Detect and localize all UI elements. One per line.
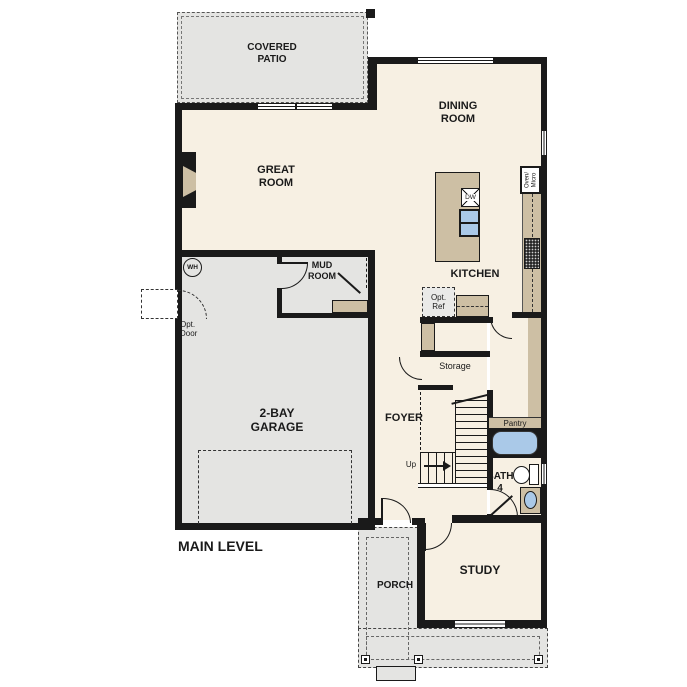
stove xyxy=(524,238,540,269)
water-heater: WH xyxy=(183,258,202,277)
hall-stub-wall xyxy=(421,323,435,351)
covered-patio-label: COVERED PATIO xyxy=(222,42,322,66)
patio-corner-wall xyxy=(366,9,375,18)
ne-step-wall xyxy=(368,57,377,110)
oven-micro-label: Oven/ Micro xyxy=(524,172,537,188)
water-heater-label: WH xyxy=(187,264,198,271)
opt-door-recess xyxy=(141,289,178,319)
kitchen-label: KITCHEN xyxy=(435,268,515,281)
opt-ref-label: Opt. Ref xyxy=(431,293,446,311)
study-bottom-window xyxy=(455,620,505,628)
porch-column-2 xyxy=(415,656,422,663)
up-label: Up xyxy=(402,460,420,469)
mud-bottom-wall xyxy=(277,313,370,318)
pantry-shelf xyxy=(528,318,541,417)
sink-basin-1 xyxy=(461,211,478,222)
counter-mid-dash xyxy=(457,306,488,307)
bath-right-window xyxy=(541,464,547,484)
study-label: STUDY xyxy=(430,563,530,577)
garage-door-outline xyxy=(198,450,352,524)
mud-room-label: MUD ROOM xyxy=(296,260,348,282)
up-arrow-head xyxy=(443,461,451,471)
garage-right-wall xyxy=(368,250,375,530)
oven-micro: Oven/ Micro xyxy=(520,166,541,194)
stairs-base-line xyxy=(418,483,487,488)
bath-label: BATH xyxy=(482,471,518,483)
dining-top-window xyxy=(418,57,493,64)
pantry-label: Pantry xyxy=(503,419,526,428)
mud-bench xyxy=(332,300,368,313)
up-arrow-line xyxy=(424,465,444,467)
opt-ref: Opt. Ref xyxy=(422,287,455,317)
storage-label: Storage xyxy=(430,361,480,371)
study-bottom-wall-left xyxy=(417,620,455,628)
porch-column-1 xyxy=(362,656,369,663)
storage-bottom-wall xyxy=(418,385,453,390)
front-wall-left xyxy=(358,518,383,525)
great-room-label: GREAT ROOM xyxy=(226,164,326,190)
foyer-label: FOYER xyxy=(377,412,431,425)
kitchen-counter-mid xyxy=(456,295,489,317)
garage-label: 2-BAY GARAGE xyxy=(227,406,327,435)
garage-top-wall xyxy=(175,250,375,257)
bathtub xyxy=(492,431,538,455)
dishwasher-label: DW xyxy=(464,194,477,201)
vanity-sink xyxy=(524,491,537,509)
study-bottom-wall-right xyxy=(505,620,547,628)
garage-bottom-wall xyxy=(175,523,375,530)
great-room-window-1 xyxy=(258,103,295,110)
porch-column-3 xyxy=(535,656,542,663)
porch-step xyxy=(376,666,416,681)
floor-plan: WH Opt. Door DW Oven/ Micro Opt. Ref Pan… xyxy=(0,0,687,687)
opt-door-label: Opt. Door xyxy=(180,320,214,338)
dishwasher: DW xyxy=(461,188,480,207)
great-room-window-2 xyxy=(297,103,332,110)
porch-inner-dash-front xyxy=(366,636,540,660)
mud-overhead-dash xyxy=(366,258,367,288)
porch-label: PORCH xyxy=(368,580,422,592)
storage-top-wall xyxy=(420,351,490,357)
bath-number-label: 4 xyxy=(482,483,518,495)
dining-right-window xyxy=(541,131,547,155)
toilet-tank xyxy=(529,464,539,485)
dining-room-label: DINING ROOM xyxy=(408,100,508,126)
main-level-title: MAIN LEVEL xyxy=(178,538,318,555)
sink-basin-2 xyxy=(461,224,478,235)
kitchen-sink xyxy=(459,209,480,237)
